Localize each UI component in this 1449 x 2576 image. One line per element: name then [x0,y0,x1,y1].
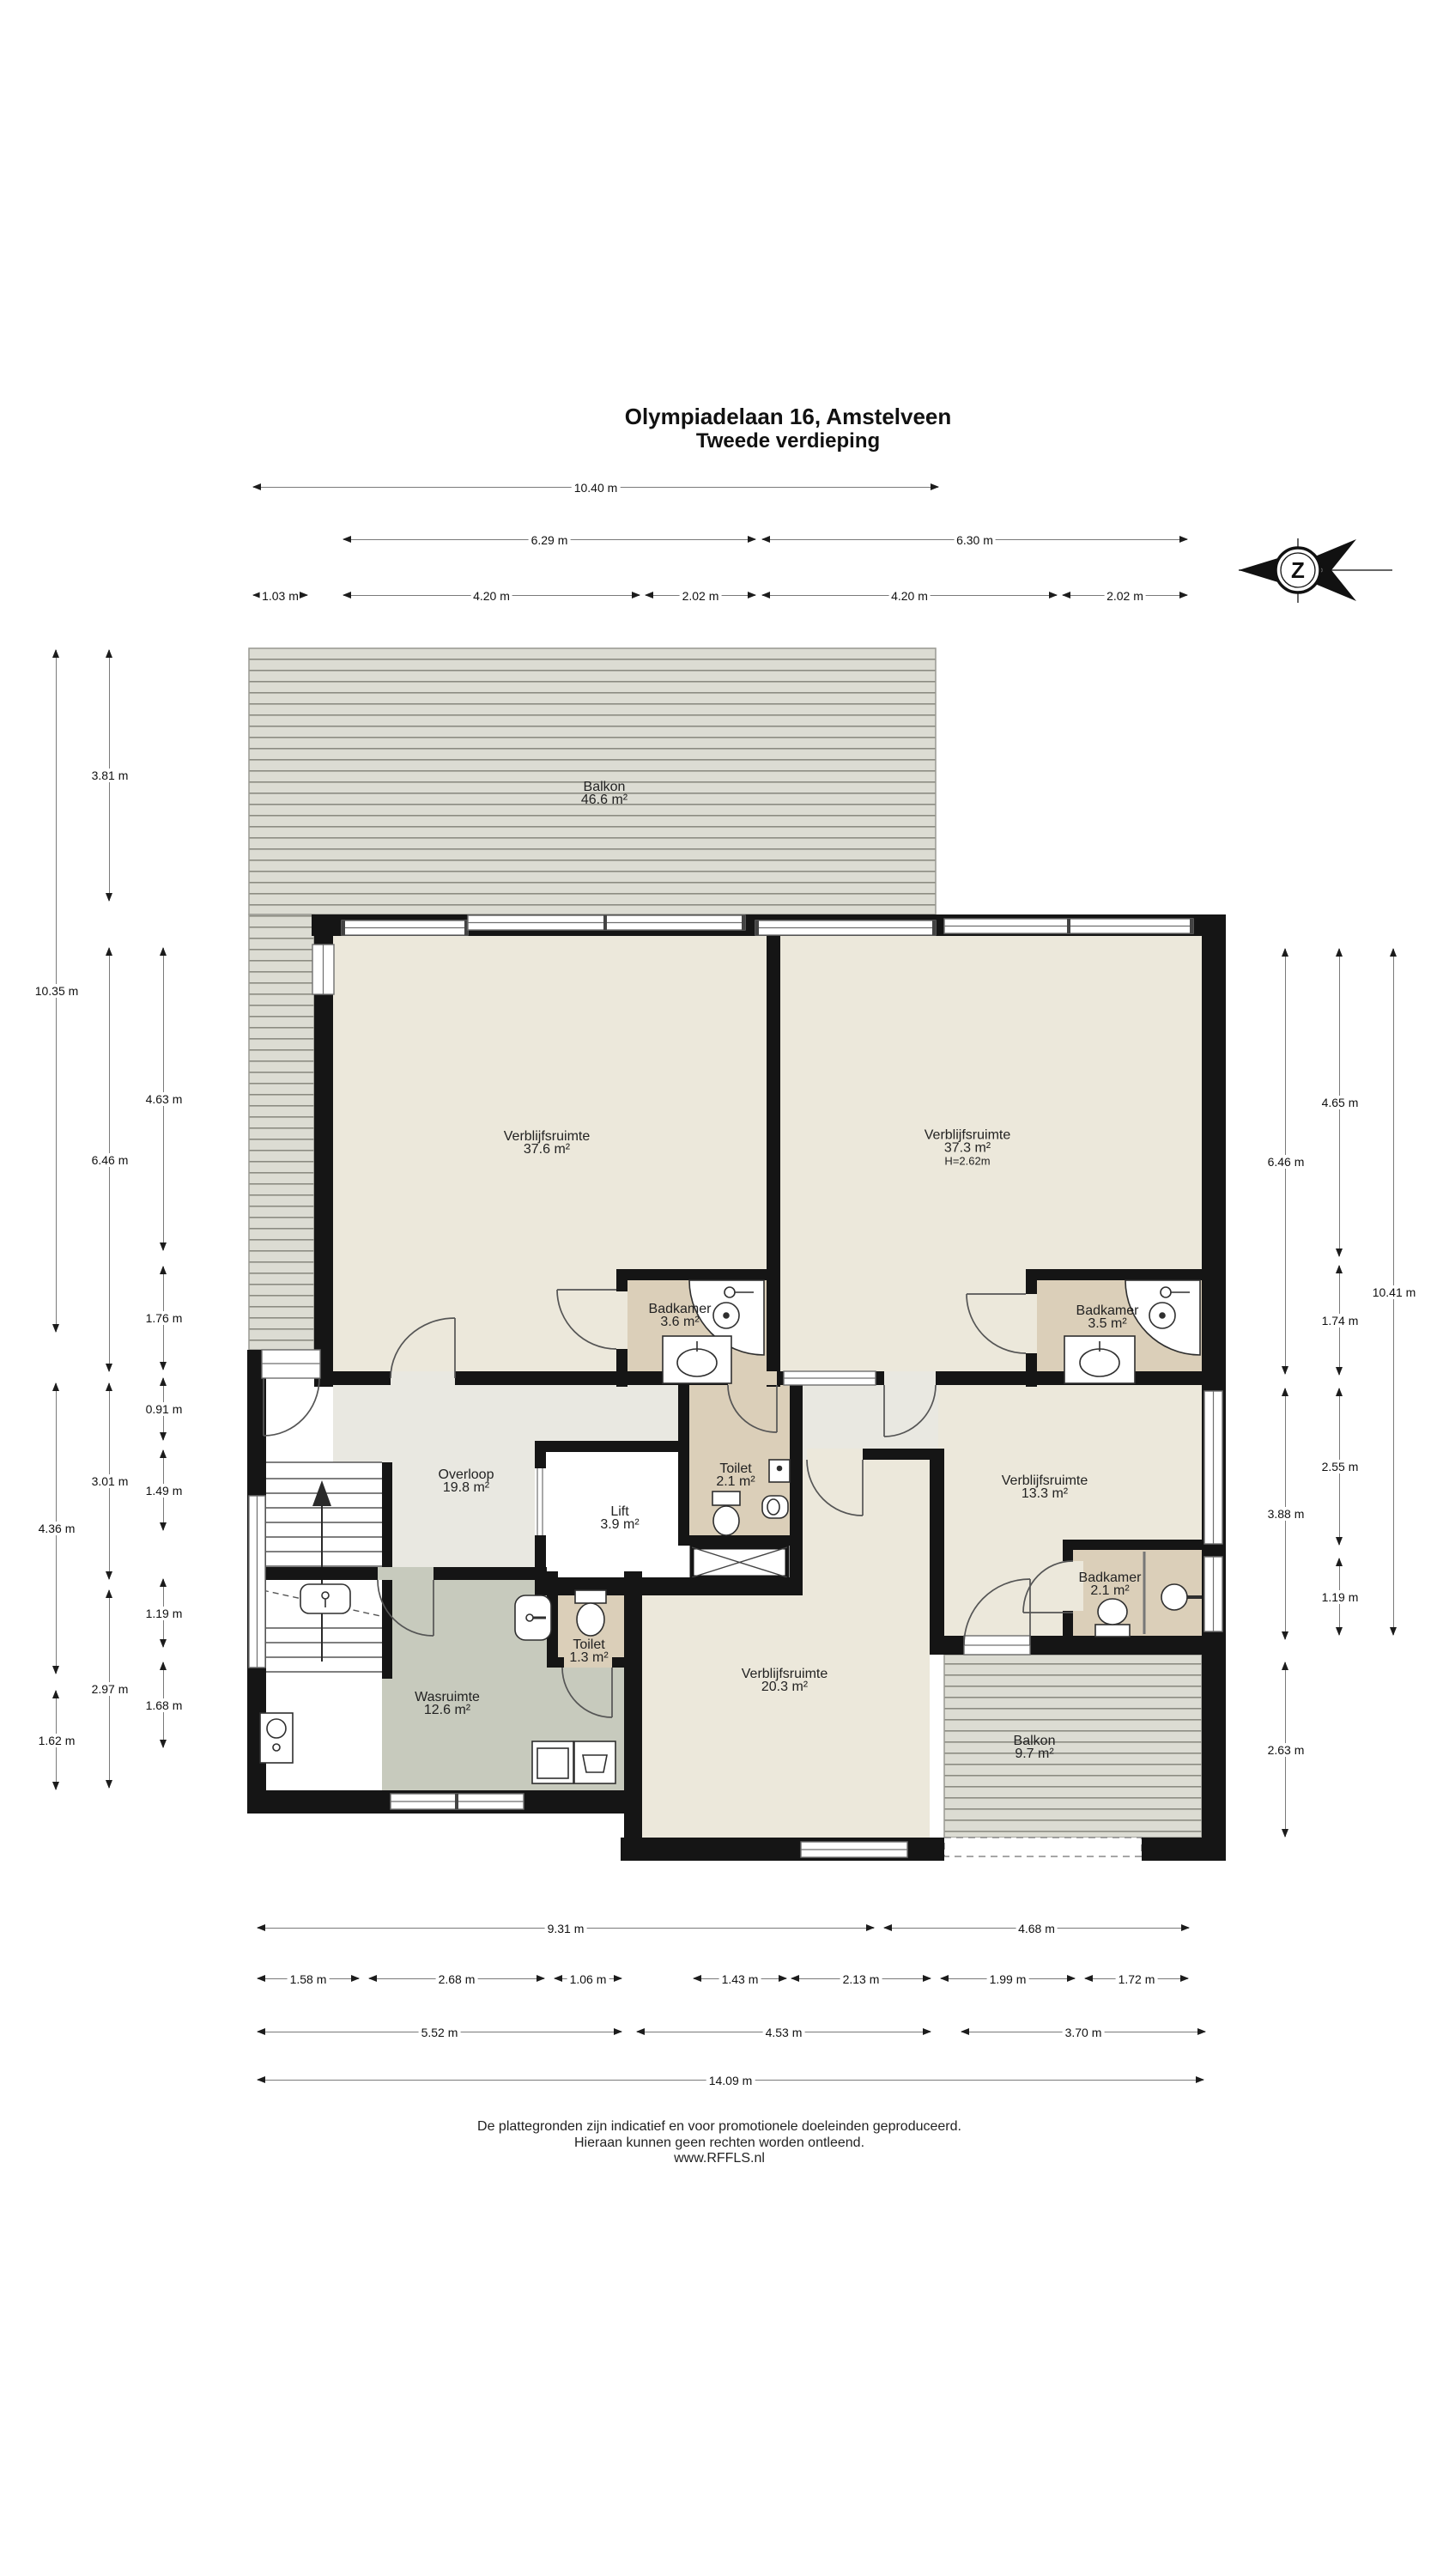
dimension: 2.68 m [369,1978,544,1979]
wall [1142,1838,1226,1861]
sink-icon [762,1496,788,1518]
dimension: 4.36 m [56,1383,57,1674]
dimension: 1.99 m [941,1978,1075,1979]
dimension: 10.40 m [253,487,938,488]
plan-title: Olympiadelaan 16, Amstelveen Tweede verd… [488,404,1088,453]
dimension: 3.81 m [109,650,110,901]
label-wasruimte: Wasruimte 12.6 m² [415,1691,480,1716]
sink-icon [769,1460,790,1482]
wall [616,1349,627,1387]
window [755,920,936,935]
window [391,1794,524,1809]
dimension: 1.76 m [163,1267,164,1370]
dimension: 2.02 m [646,595,755,596]
floor-living-bottom-b [642,1595,803,1838]
wall [535,1441,689,1452]
dimension: 1.03 m [253,595,307,596]
window [1204,1557,1222,1631]
window [249,1496,265,1668]
sink-icon [663,1336,731,1383]
label-toilet-links: Toilet 1.3 m² [569,1638,608,1664]
dimension: 4.68 m [884,1928,1189,1929]
dimension: 5.52 m [258,2032,621,2032]
wall [535,1441,546,1470]
label-badkamer-links: Badkamer 3.6 m² [649,1303,712,1328]
address-title: Olympiadelaan 16, Amstelveen [488,404,1088,429]
dimension: 1.68 m [163,1662,164,1747]
dimension: 4.20 m [762,595,1057,596]
sink-icon [1064,1336,1135,1383]
dimension: 4.20 m [343,595,640,596]
disclaimer: De plattegronden zijn indicatief en voor… [204,2119,1234,2167]
wall [558,1657,564,1668]
dimension: 6.29 m [343,539,755,540]
label-balkon-boven: Balkon 46.6 m² [581,781,627,806]
balcony-open-edge [944,1838,1142,1856]
dimension: 2.55 m [1339,1388,1340,1545]
wall [790,1371,803,1577]
toilet-icon [1095,1599,1130,1637]
floor-subtitle: Tweede verdieping [488,429,1088,453]
dimension: 2.63 m [1285,1662,1286,1837]
wall [616,1269,627,1291]
dryer-icon [574,1741,615,1783]
label-verblijfsruimte-midden: Verblijfsruimte 13.3 m² [1002,1474,1088,1500]
label-verblijfsruimte-rechts: Verblijfsruimte 37.3 m² H=2.62m [925,1129,1010,1168]
window [342,920,468,935]
disclaimer-line2: Hieraan kunnen geen rechten worden ontle… [204,2136,1234,2152]
window [468,915,745,930]
label-verblijfsruimte-links: Verblijfsruimte 37.6 m² [504,1130,590,1156]
wall-cabinet [300,1584,350,1613]
wall [930,1449,944,1655]
wall [616,1269,773,1280]
shaft [692,1547,787,1577]
floorplan-drawing: Z [0,0,1449,2576]
wall [263,1567,378,1580]
dimension: 6.46 m [109,948,110,1371]
dimension: 4.65 m [1339,949,1340,1256]
label-badkamer-rechts: Badkamer 3.5 m² [1076,1304,1139,1330]
dimension: 4.53 m [637,2032,931,2032]
lift-door [535,1468,546,1535]
dimension: 1.43 m [694,1978,786,1979]
balcony-door-sill [964,1636,1030,1655]
north-arrow-icon: Z [1239,538,1392,603]
dimension: 2.97 m [109,1590,110,1788]
dimension: 6.30 m [762,539,1187,540]
wall [1026,1269,1037,1294]
label-lift: Lift 3.9 m² [600,1505,639,1531]
dimension: 2.13 m [791,1978,931,1979]
label-overloop: Overloop 19.8 m² [439,1468,494,1494]
label-toilet-midden: Toilet 2.1 m² [716,1462,755,1488]
wall [1026,1269,1202,1280]
sliding-door [784,1371,876,1385]
wall [1202,914,1226,1388]
wall [678,1535,803,1546]
window [312,945,334,994]
wall [1063,1611,1073,1640]
toilet-icon [575,1590,606,1636]
toilet-icon [712,1492,740,1535]
dimension: 3.01 m [109,1383,110,1579]
wall [1063,1540,1202,1550]
balcony-bottom-deck [944,1655,1202,1856]
wall [433,1567,547,1580]
dimension: 1.49 m [163,1450,164,1530]
dimension: 1.58 m [258,1978,359,1979]
dimension: 9.31 m [258,1928,874,1929]
dimension: 14.09 m [258,2080,1203,2081]
label-verblijfsruimte-onder: Verblijfsruimte 20.3 m² [742,1668,828,1693]
dimension: 1.62 m [56,1691,57,1789]
sink-icon [515,1595,551,1640]
balcony-door-sill [262,1350,320,1378]
floor-living-bottom-a [803,1460,930,1838]
window [944,919,1193,933]
label-badkamer-midden: Badkamer 2.1 m² [1079,1571,1142,1597]
label-balkon-onder: Balkon 9.7 m² [1014,1735,1056,1760]
dimension: 1.74 m [1339,1266,1340,1375]
dimension: 1.19 m [1339,1558,1340,1635]
dimension: 0.91 m [163,1378,164,1440]
dimension: 10.41 m [1393,949,1394,1635]
website-url: www.RFFLS.nl [204,2151,1234,2167]
wall [767,936,780,1387]
dimension: 1.19 m [163,1579,164,1647]
dimension: 1.72 m [1085,1978,1188,1979]
dimension: 3.88 m [1285,1388,1286,1639]
dimension: 1.06 m [555,1978,621,1979]
window [801,1842,907,1857]
washer-icon [532,1741,573,1783]
dimension: 10.35 m [56,650,57,1332]
dimension: 4.63 m [163,948,164,1250]
floorplan-page: Z Olympiadelaan 16, Amstelveen Tweede ve… [0,0,1449,2576]
disclaimer-line1: De plattegronden zijn indicatief en voor… [204,2119,1234,2136]
door [264,1378,319,1436]
wall [1026,1353,1037,1387]
compass-letter: Z [1291,557,1305,583]
window [1204,1391,1222,1544]
dimension: 3.70 m [961,2032,1205,2032]
boiler-icon [260,1713,293,1763]
dimension: 6.46 m [1285,949,1286,1374]
wall [1063,1540,1073,1561]
wall [612,1657,624,1668]
wall [678,1385,689,1535]
wall [863,1449,938,1460]
dimension: 2.02 m [1063,595,1187,596]
